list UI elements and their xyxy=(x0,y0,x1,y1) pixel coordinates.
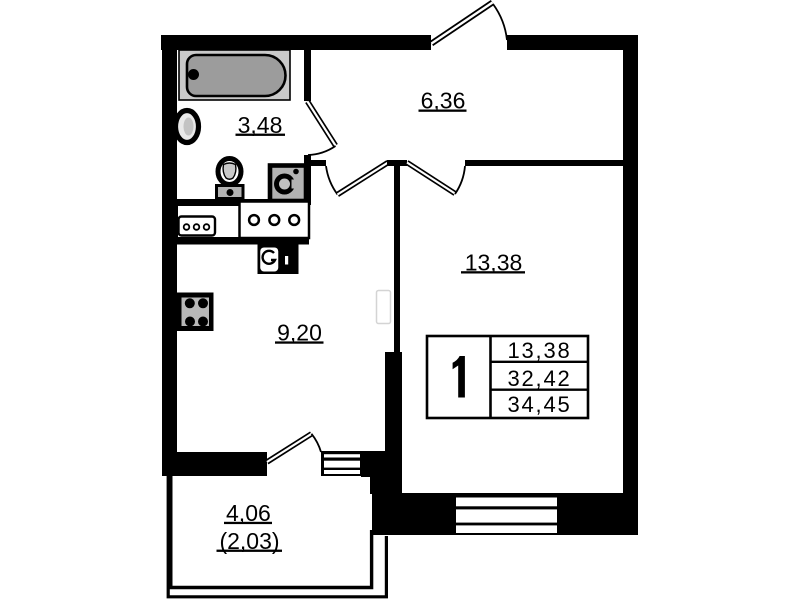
svg-text:13,38: 13,38 xyxy=(507,338,571,363)
svg-text:34,45: 34,45 xyxy=(507,392,571,417)
svg-text:32,42: 32,42 xyxy=(507,366,571,391)
